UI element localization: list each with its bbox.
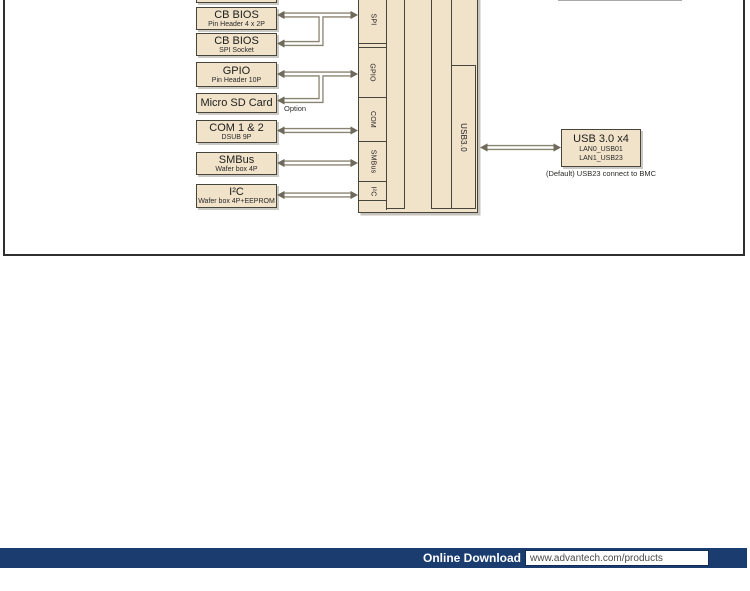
box-subtitle: DSUB 9P [222, 134, 252, 142]
box-title: USB 3.0 x4 [573, 133, 629, 146]
box-cb-bios-spi-socket: CB BIOS SPI Socket [196, 33, 277, 56]
box-title: GPIO [223, 65, 251, 77]
box-smbus: SMBus Wafer box 4P [196, 152, 277, 175]
box-subtitle: Pin Header 4 x 2P [208, 21, 265, 29]
box-com-1-2: COM 1 & 2 DSUB 9P [196, 120, 277, 143]
port-label: SMBus [369, 150, 376, 174]
inner-column-a [386, 0, 405, 209]
box-title: SMBus [219, 154, 254, 166]
usb3-column: USB3.0 [451, 65, 476, 209]
inner-column-b [431, 0, 452, 209]
port-label: I²C [369, 186, 376, 196]
usb-bmc-note: (Default) USB23 connect to BMC [521, 169, 681, 178]
cutoff-box-right [558, 0, 682, 1]
box-cb-bios-pin-header: CB BIOS Pin Header 4 x 2P [196, 7, 277, 30]
footer-url-box[interactable]: www.advantech.com/products [525, 550, 709, 566]
box-title: Micro SD Card [200, 97, 272, 109]
box-usb3-x4: USB 3.0 x4 LAN0_USB01 LAN1_USB23 [561, 129, 641, 167]
box-subtitle: Pin Header 10P [212, 77, 261, 85]
port-cell-spi: SPI [358, 0, 387, 44]
port-label: SPI [369, 13, 376, 25]
option-label: Option [284, 104, 306, 113]
box-title: CB BIOS [214, 35, 259, 47]
port-cell-smbus: SMBus [358, 141, 387, 182]
cutoff-box-left [196, 0, 277, 3]
box-subtitle: Wafer box 4P [215, 166, 257, 174]
box-subtitle: Wafer box 4P+EEPROM [198, 198, 275, 206]
port-cell-com: COM [358, 97, 387, 142]
box-title: I²C [229, 186, 244, 198]
port-label: GPIO [369, 63, 376, 81]
footer-bar: Online Download www.advantech.com/produc… [0, 548, 747, 568]
port-column-stub [358, 200, 387, 210]
box-title: COM 1 & 2 [209, 122, 263, 134]
port-cell-gpio: GPIO [358, 47, 387, 98]
box-i2c: I²C Wafer box 4P+EEPROM [196, 184, 277, 208]
box-micro-sd-card: Micro SD Card [196, 93, 277, 113]
port-label: COM [369, 111, 376, 128]
box-line: LAN0_USB01 [579, 146, 623, 155]
port-cell-i2c: I²C [358, 181, 387, 201]
box-subtitle: SPI Socket [219, 47, 254, 55]
usb3-column-label: USB3.0 [459, 123, 468, 152]
box-line: LAN1_USB23 [579, 155, 623, 164]
footer-download-label: Online Download [423, 548, 521, 568]
box-title: CB BIOS [214, 9, 259, 21]
box-gpio: GPIO Pin Header 10P [196, 62, 277, 87]
